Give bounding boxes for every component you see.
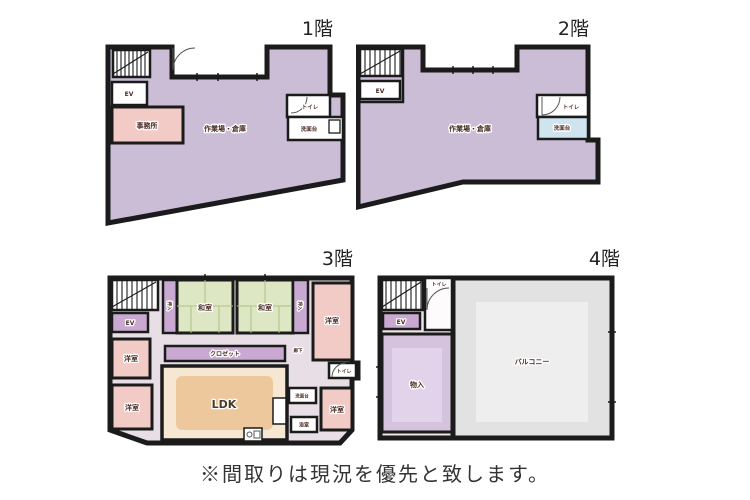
toilet-label: トイレ [336,369,351,375]
closet-label: クロゼット [210,350,240,358]
western-room-label: 洋室 [325,316,339,325]
ldk-entry-recess [273,398,286,424]
floorplan-page: 1階 EV [0,0,750,500]
office-label: 事務所 [137,121,158,130]
floor1-title: 1階 [302,14,333,41]
washbasin-label: 洗面台 [295,393,309,400]
elevator-label: EV [397,319,406,326]
elevator-label: EV [125,91,134,98]
floor3-plan: 3階 EV 洋室 洋室 [101,244,363,458]
toilet-label: トイレ [431,282,446,288]
floor3-title: 3階 [322,244,353,271]
washbasin-label: 洗面台 [554,124,571,132]
hallway-label: 廊下 [294,347,303,354]
workspace-label: 作業場・倉庫 [204,124,246,133]
storage-label: 物入 [410,380,424,389]
floor4-drawing: バルコニー トイレ EV [376,272,624,458]
floor2-plan: 2階 EV 作業場・倉庫 [356,14,608,230]
ldk-label: LDK [212,398,237,411]
toilet-label: トイレ [563,104,580,111]
tatami-room-label: 和室 [197,303,212,312]
floor4-title: 4階 [589,244,620,271]
elevator-label: EV [376,88,385,95]
toilet-label: トイレ [302,104,319,111]
disclaimer-caption: ※間取りは現況を優先と致します。 [0,458,750,487]
western-room-label: 洋室 [125,403,139,412]
elevator-label: EV [126,320,135,327]
oshiire-label: 押入 [297,302,304,311]
washbasin-counter [329,120,340,133]
western-room-label: 洋室 [330,405,344,414]
oshiire-label: 押入 [166,302,173,311]
balcony-label: バルコニー [515,358,550,366]
tatami-room-label: 和室 [257,303,272,312]
western-room-label: 洋室 [124,354,138,363]
floor2-title: 2階 [558,14,589,41]
washbasin-label: 洗面台 [301,125,318,133]
floor2-drawing: EV 作業場・倉庫 トイレ 洗面台 [356,40,608,230]
entrance-door-arc [173,48,195,70]
floor1-drawing: EV 事務所 作業場・倉庫 トイレ 洗面台 [103,40,353,230]
bath-label: 浴室 [299,422,309,429]
kitchen-sink-icon [244,428,262,441]
floor3-drawing: EV 洋室 洋室 押入 和室 和室 押入 洋室 [101,272,363,458]
floor1-plan: 1階 EV [103,14,353,230]
floor4-plan: 4階 バルコニー トイレ [376,244,624,458]
workspace-label: 作業場・倉庫 [449,124,491,133]
